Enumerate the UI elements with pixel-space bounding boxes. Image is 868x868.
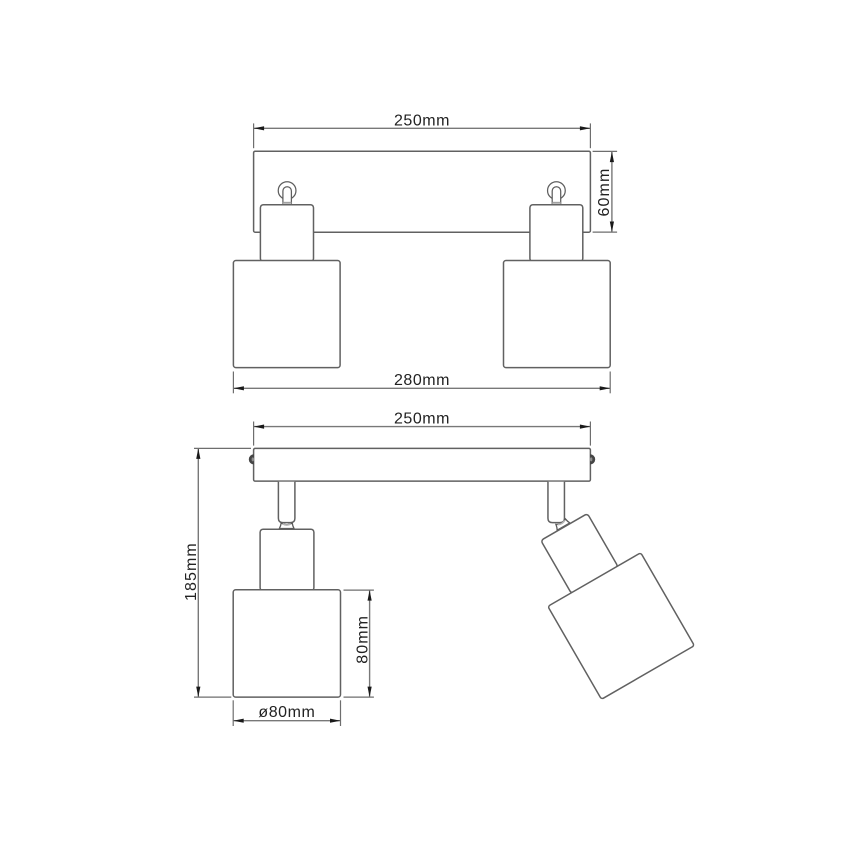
svg-text:ø80mm: ø80mm xyxy=(258,704,315,721)
svg-text:185mm: 185mm xyxy=(183,542,200,601)
svg-text:250mm: 250mm xyxy=(394,112,450,129)
svg-text:250mm: 250mm xyxy=(394,410,450,427)
svg-text:80mm: 80mm xyxy=(354,615,371,664)
svg-text:280mm: 280mm xyxy=(394,372,450,389)
svg-text:60mm: 60mm xyxy=(596,168,613,217)
